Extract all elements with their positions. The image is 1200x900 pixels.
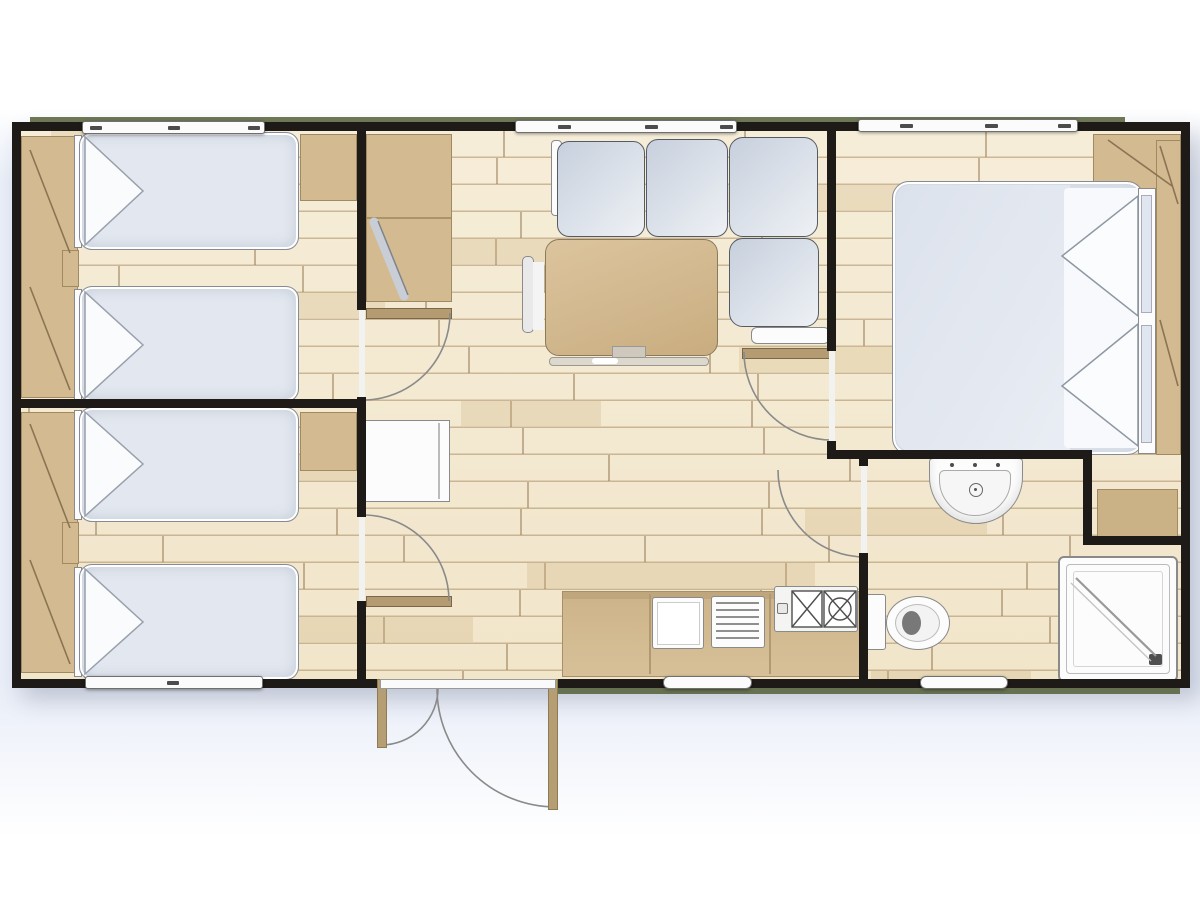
exterior-trim-bottom — [558, 688, 1180, 694]
counter-divider — [769, 594, 771, 674]
single-bed-3 — [80, 408, 298, 521]
single-bed-4 — [80, 565, 298, 679]
between-beds-shelf-bottom — [62, 522, 79, 564]
window-handle — [985, 124, 998, 128]
window-handle — [558, 125, 571, 129]
sofa-cushion-3 — [729, 137, 818, 237]
wall-bottom-right — [558, 679, 1190, 688]
entry-door-jamb-right — [548, 679, 558, 810]
window-handle — [167, 681, 179, 685]
faucet-dot — [996, 463, 1000, 467]
door-leaf-bedroom3 — [742, 348, 830, 359]
door-opening-bedroom3 — [829, 351, 835, 441]
hallway-tall-cabinet — [366, 134, 452, 302]
wall-bedrooms-vertical-lower — [357, 601, 366, 679]
drainer-rack — [711, 596, 765, 648]
wall-left — [12, 122, 21, 688]
entry-door-threshold — [380, 679, 556, 689]
basin-drain — [969, 483, 983, 497]
floorplan-image — [0, 0, 1200, 900]
corner-cabinet-bedroom2 — [300, 412, 357, 471]
wall-right — [1181, 122, 1190, 688]
door-leaf-bedroom1 — [366, 308, 452, 319]
window-handle — [90, 126, 102, 130]
refrigerator — [365, 420, 450, 502]
corner-cabinet-bedroom1 — [300, 134, 357, 201]
window-bottom-kitchen — [663, 676, 752, 689]
wardrobe-right — [1156, 140, 1181, 455]
bathroom-niche-cabinet — [1097, 489, 1178, 539]
between-beds-shelf-top — [62, 250, 79, 287]
toilet-water — [902, 611, 921, 635]
wall-living-bedroom-upper — [827, 131, 836, 351]
sofa-cushion-1 — [557, 141, 645, 237]
wall-niche-left — [1083, 450, 1092, 545]
window-handle — [248, 126, 260, 130]
sofa-cushion-2 — [646, 139, 728, 237]
sink-basin — [657, 602, 700, 645]
window-top-living — [515, 120, 737, 133]
single-bed-2 — [80, 287, 298, 401]
dining-table — [545, 239, 718, 356]
wall-bedrooms-vertical-upper — [357, 131, 366, 310]
door-opening-bathroom — [861, 466, 867, 553]
window-handle — [900, 124, 913, 128]
headboard-shelf — [1138, 188, 1156, 454]
table-foot-plate — [549, 357, 709, 366]
window-handle — [720, 125, 733, 129]
door-opening-bedroom1 — [359, 310, 365, 397]
hob-knob — [777, 603, 788, 614]
fridge-door-edge — [438, 423, 440, 499]
chair-seat — [533, 262, 544, 330]
window-handle — [645, 125, 658, 129]
faucet-dot — [950, 463, 954, 467]
wall-bathroom-left-lower — [859, 553, 868, 679]
wall-bedrooms-vertical-middle — [357, 397, 366, 517]
double-bed-sheet — [1064, 188, 1140, 448]
cabinet-divider — [367, 217, 451, 219]
counter-divider — [649, 594, 651, 674]
table-foot-notch — [592, 358, 618, 364]
window-handle — [168, 126, 180, 130]
sofa-corner-cushion — [729, 238, 819, 327]
shower-drain — [1149, 654, 1162, 665]
wall-between-left-bedrooms — [21, 399, 357, 408]
sofa-base — [751, 327, 830, 344]
toilet-tank — [866, 594, 886, 650]
shower-tray-line — [1073, 571, 1163, 667]
window-bottom-bathroom — [920, 676, 1008, 689]
door-opening-bedroom2 — [359, 517, 365, 601]
double-bed-blanket — [896, 185, 1070, 451]
single-bed-1 — [80, 133, 298, 249]
wall-niche-bottom — [1083, 536, 1181, 545]
headboard-panel — [1141, 195, 1152, 313]
wall-bathroom-left-upper — [859, 450, 868, 466]
entry-door-jamb-left — [377, 679, 387, 748]
toilet-bowl — [886, 596, 950, 650]
faucet-dot — [973, 463, 977, 467]
window-handle — [1058, 124, 1071, 128]
window-top-bedroom-right — [858, 119, 1078, 132]
shower-cabin — [1058, 556, 1178, 682]
kitchen-sink — [652, 597, 704, 649]
door-leaf-bedroom2 — [366, 596, 452, 607]
headboard-panel — [1141, 325, 1152, 443]
